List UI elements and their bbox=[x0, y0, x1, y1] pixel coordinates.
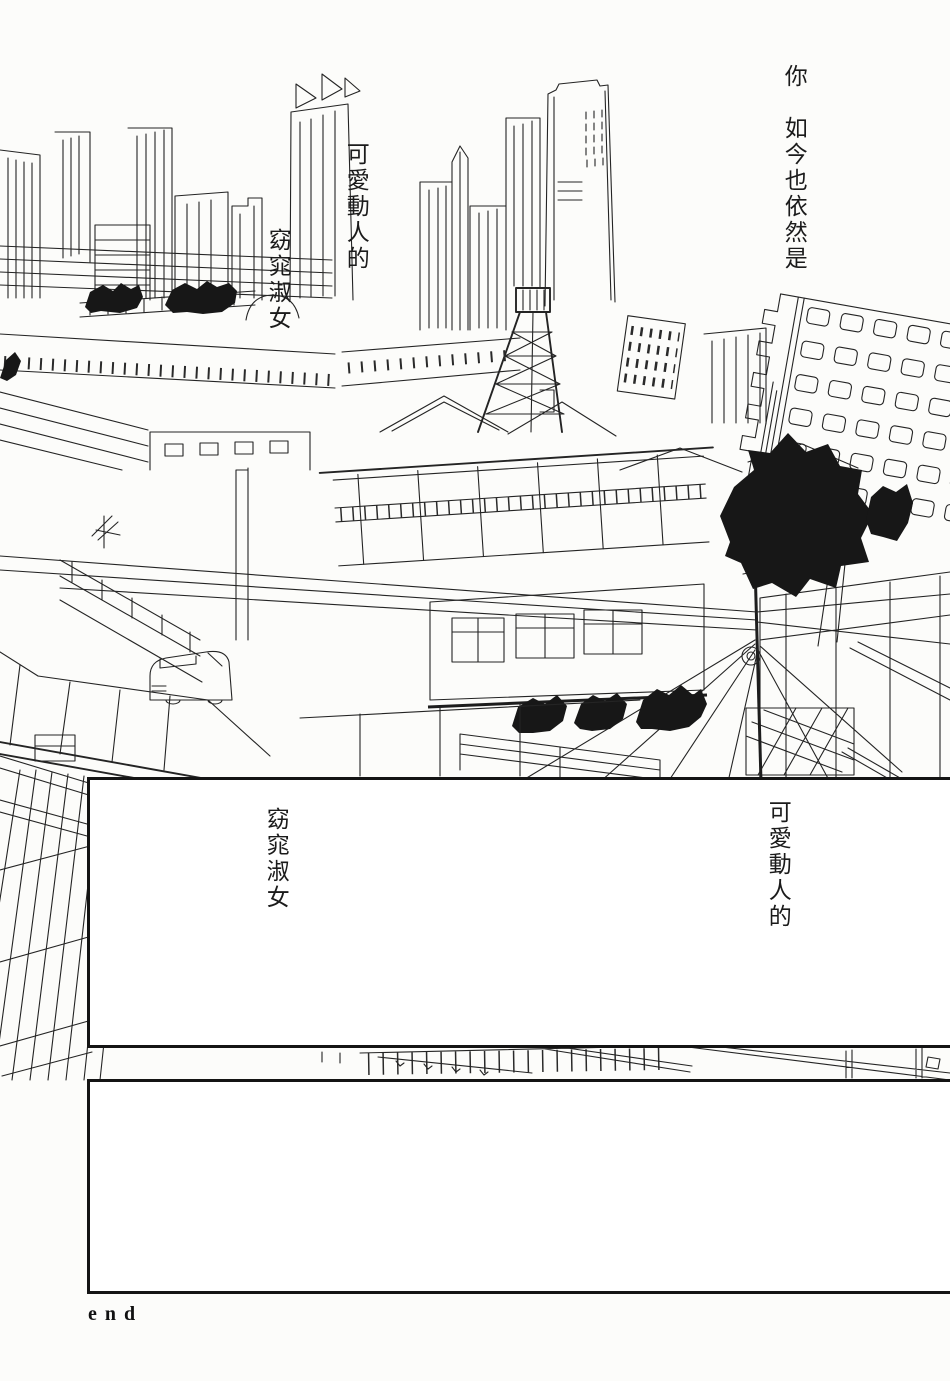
right-walls bbox=[746, 572, 950, 778]
caption-top-right: 你 如今也依然是 bbox=[781, 64, 806, 272]
end-label: end bbox=[88, 1303, 143, 1326]
van bbox=[150, 651, 232, 704]
skyline-mid-cluster bbox=[420, 118, 540, 330]
trees-and-bushes bbox=[0, 281, 913, 733]
balcony-slab bbox=[320, 447, 719, 566]
caption-top-lady: 窈窕淑女 bbox=[265, 228, 290, 332]
caption-panel-cute: 可愛動人的 bbox=[765, 800, 790, 930]
panel-blank-1 bbox=[87, 777, 950, 1048]
apartment-neighbor-lines bbox=[704, 328, 766, 424]
between-panel-strip bbox=[322, 1044, 950, 1080]
low-building-band bbox=[0, 334, 520, 388]
caption-top-cute: 可愛動人的 bbox=[343, 142, 368, 272]
manga-page: 你 如今也依然是 可愛動人的 窈窕淑女 窈窕淑女 可愛動人的 end bbox=[0, 0, 950, 1381]
apartment-block-mid bbox=[617, 316, 685, 399]
skyline-big-skyscraper bbox=[545, 80, 615, 306]
panel-blank-2 bbox=[87, 1079, 950, 1294]
caption-panel-lady: 窈窕淑女 bbox=[263, 807, 288, 911]
